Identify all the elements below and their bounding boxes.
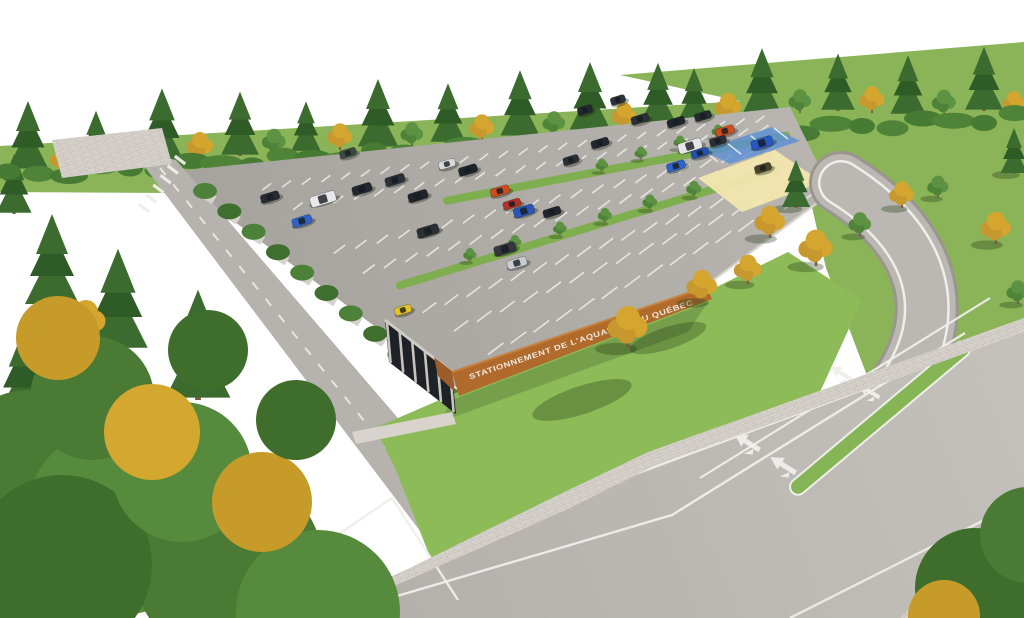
tree-shadow: [638, 209, 654, 213]
hedge-bush: [339, 305, 363, 321]
tree-canopy: [405, 122, 419, 136]
tree-canopy: [556, 221, 564, 229]
tree-canopy: [793, 89, 807, 103]
tree-shadow: [593, 222, 608, 226]
scene-svg: STATIONNEMENT DE L'AQUARIUM DU QUÉBEC: [0, 0, 1024, 618]
foreground-canopy: [168, 310, 248, 390]
tree-canopy: [646, 194, 655, 203]
tree-canopy: [676, 136, 684, 144]
tree-shadow: [595, 343, 637, 355]
tree-canopy: [616, 306, 640, 330]
tree-canopy: [864, 86, 879, 101]
tree-canopy: [987, 212, 1005, 230]
tree-shadow: [591, 171, 604, 175]
tree-canopy: [894, 181, 909, 196]
tree-shadow: [787, 262, 823, 272]
hedge-bush: [217, 203, 241, 219]
tree-canopy: [267, 129, 281, 143]
underbrush: [932, 113, 976, 129]
tree-canopy: [720, 93, 736, 109]
foreground-canopy: [16, 296, 100, 380]
tree-canopy: [547, 111, 561, 125]
tree-shadow: [677, 298, 709, 307]
tree-shadow: [841, 234, 865, 241]
hedge-bush: [363, 326, 387, 342]
tree-canopy: [689, 181, 698, 190]
underbrush: [810, 116, 854, 132]
tree-shadow: [681, 196, 697, 201]
tree-canopy: [806, 230, 827, 251]
tree-canopy: [937, 90, 951, 104]
tree-canopy: [466, 248, 474, 256]
underbrush: [971, 115, 997, 131]
hedge-bush: [266, 244, 290, 260]
tree-shadow: [971, 240, 1003, 249]
tree-canopy: [598, 159, 606, 167]
tree-canopy: [332, 123, 347, 138]
tree-shadow: [549, 235, 564, 239]
foreground-canopy: [104, 384, 200, 480]
tree-canopy: [853, 212, 867, 226]
tree-canopy: [192, 132, 208, 148]
tree-shadow: [881, 205, 908, 213]
underbrush: [23, 166, 55, 182]
tree-shadow: [745, 234, 777, 243]
hedge-bush: [290, 265, 314, 281]
rendering-canvas: STATIONNEMENT DE L'AQUARIUM DU QUÉBEC: [0, 0, 1024, 618]
underbrush: [877, 120, 909, 136]
tree-canopy: [601, 208, 610, 217]
tree-shadow: [999, 302, 1023, 309]
tree-shadow: [459, 261, 473, 265]
tree-canopy: [932, 176, 945, 189]
hedge-bush: [242, 224, 266, 240]
hedge-bush: [193, 183, 217, 199]
tree-canopy: [693, 270, 711, 288]
tree-shadow: [920, 196, 942, 202]
foreground-canopy: [212, 452, 312, 552]
tree-canopy: [474, 114, 489, 129]
tree-canopy: [637, 147, 645, 155]
tree-canopy: [761, 206, 779, 224]
foreground-canopy: [256, 380, 336, 460]
tree-canopy: [740, 255, 757, 272]
underbrush: [849, 118, 875, 134]
hedge-bush: [315, 285, 339, 301]
tree-canopy: [1007, 91, 1021, 105]
tree-shadow: [630, 159, 643, 163]
tree-shadow: [725, 281, 754, 289]
